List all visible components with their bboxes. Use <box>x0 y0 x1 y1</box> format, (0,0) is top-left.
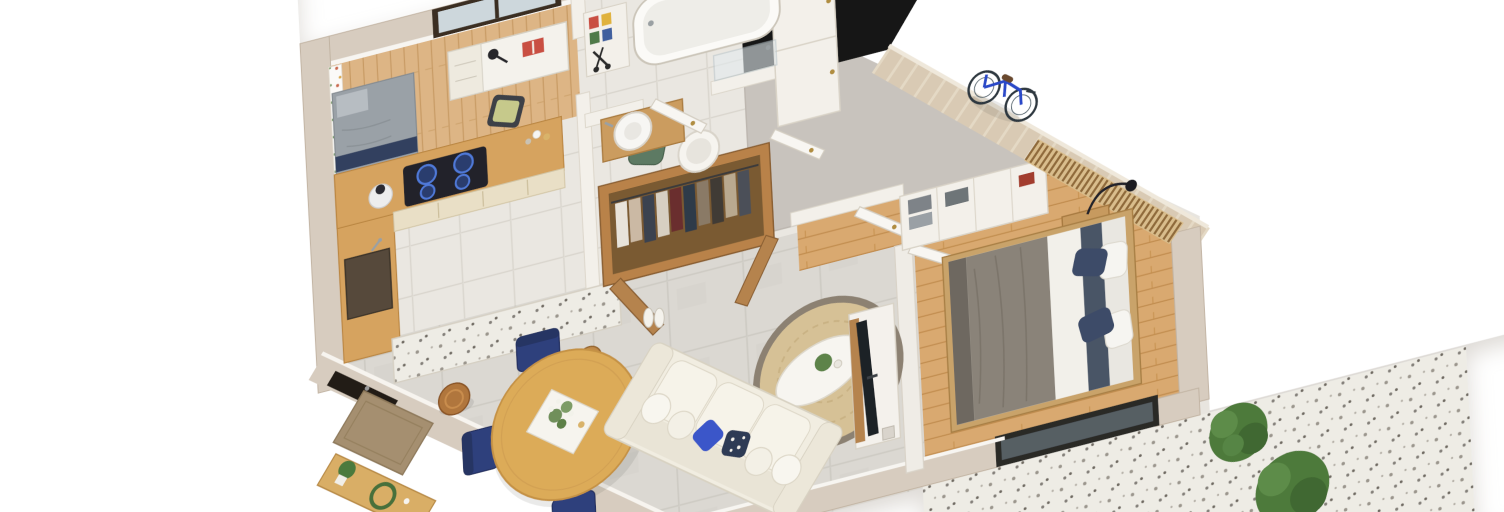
floorplan-svg: Photorealistic 3D cutaway floor plan of … <box>0 0 1504 512</box>
storage-closets <box>770 0 840 127</box>
bed-pillow-navy <box>1071 248 1109 276</box>
apartment-model <box>0 0 1504 512</box>
tv-console <box>849 303 901 449</box>
bathroom-storage-shelf <box>584 2 630 76</box>
floorplan-render: Photorealistic 3D cutaway floor plan of … <box>0 0 1504 512</box>
speaker <box>882 426 894 441</box>
